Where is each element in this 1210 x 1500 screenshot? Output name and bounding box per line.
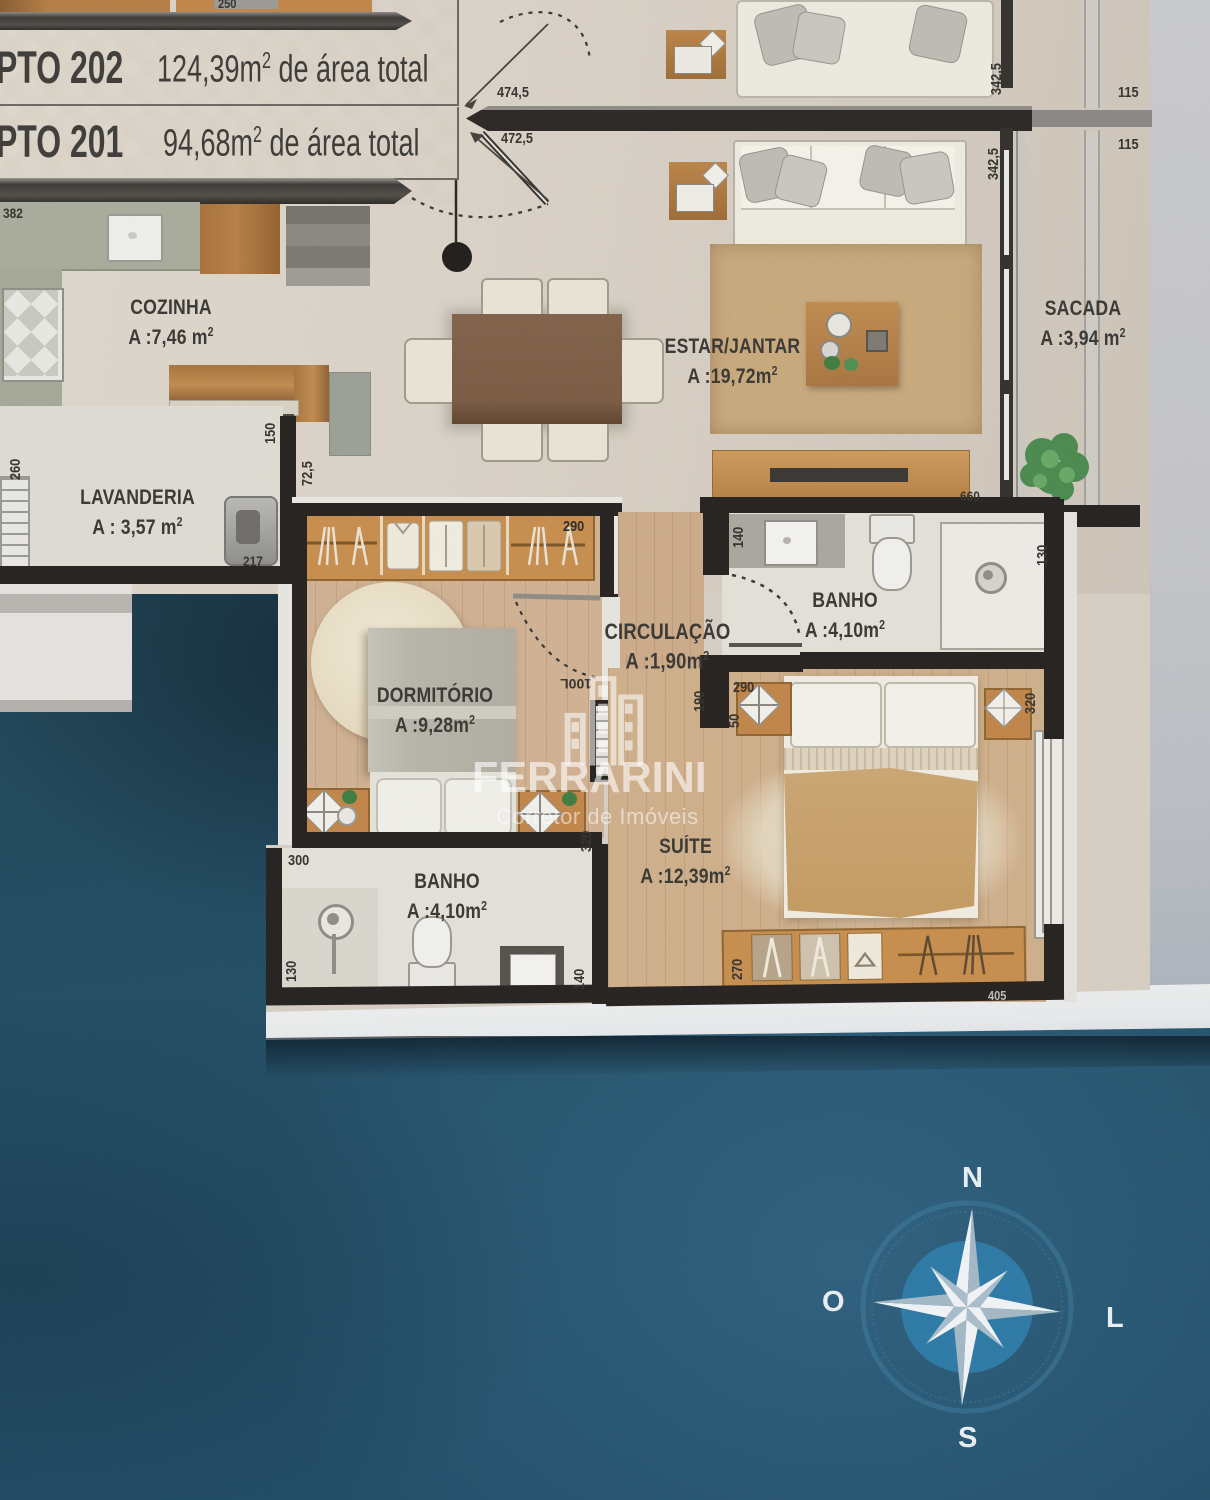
svg-text:O: O bbox=[822, 1286, 845, 1318]
svg-text:S: S bbox=[958, 1422, 977, 1454]
svg-text:N: N bbox=[962, 1162, 983, 1194]
svg-text:L: L bbox=[1106, 1302, 1124, 1334]
